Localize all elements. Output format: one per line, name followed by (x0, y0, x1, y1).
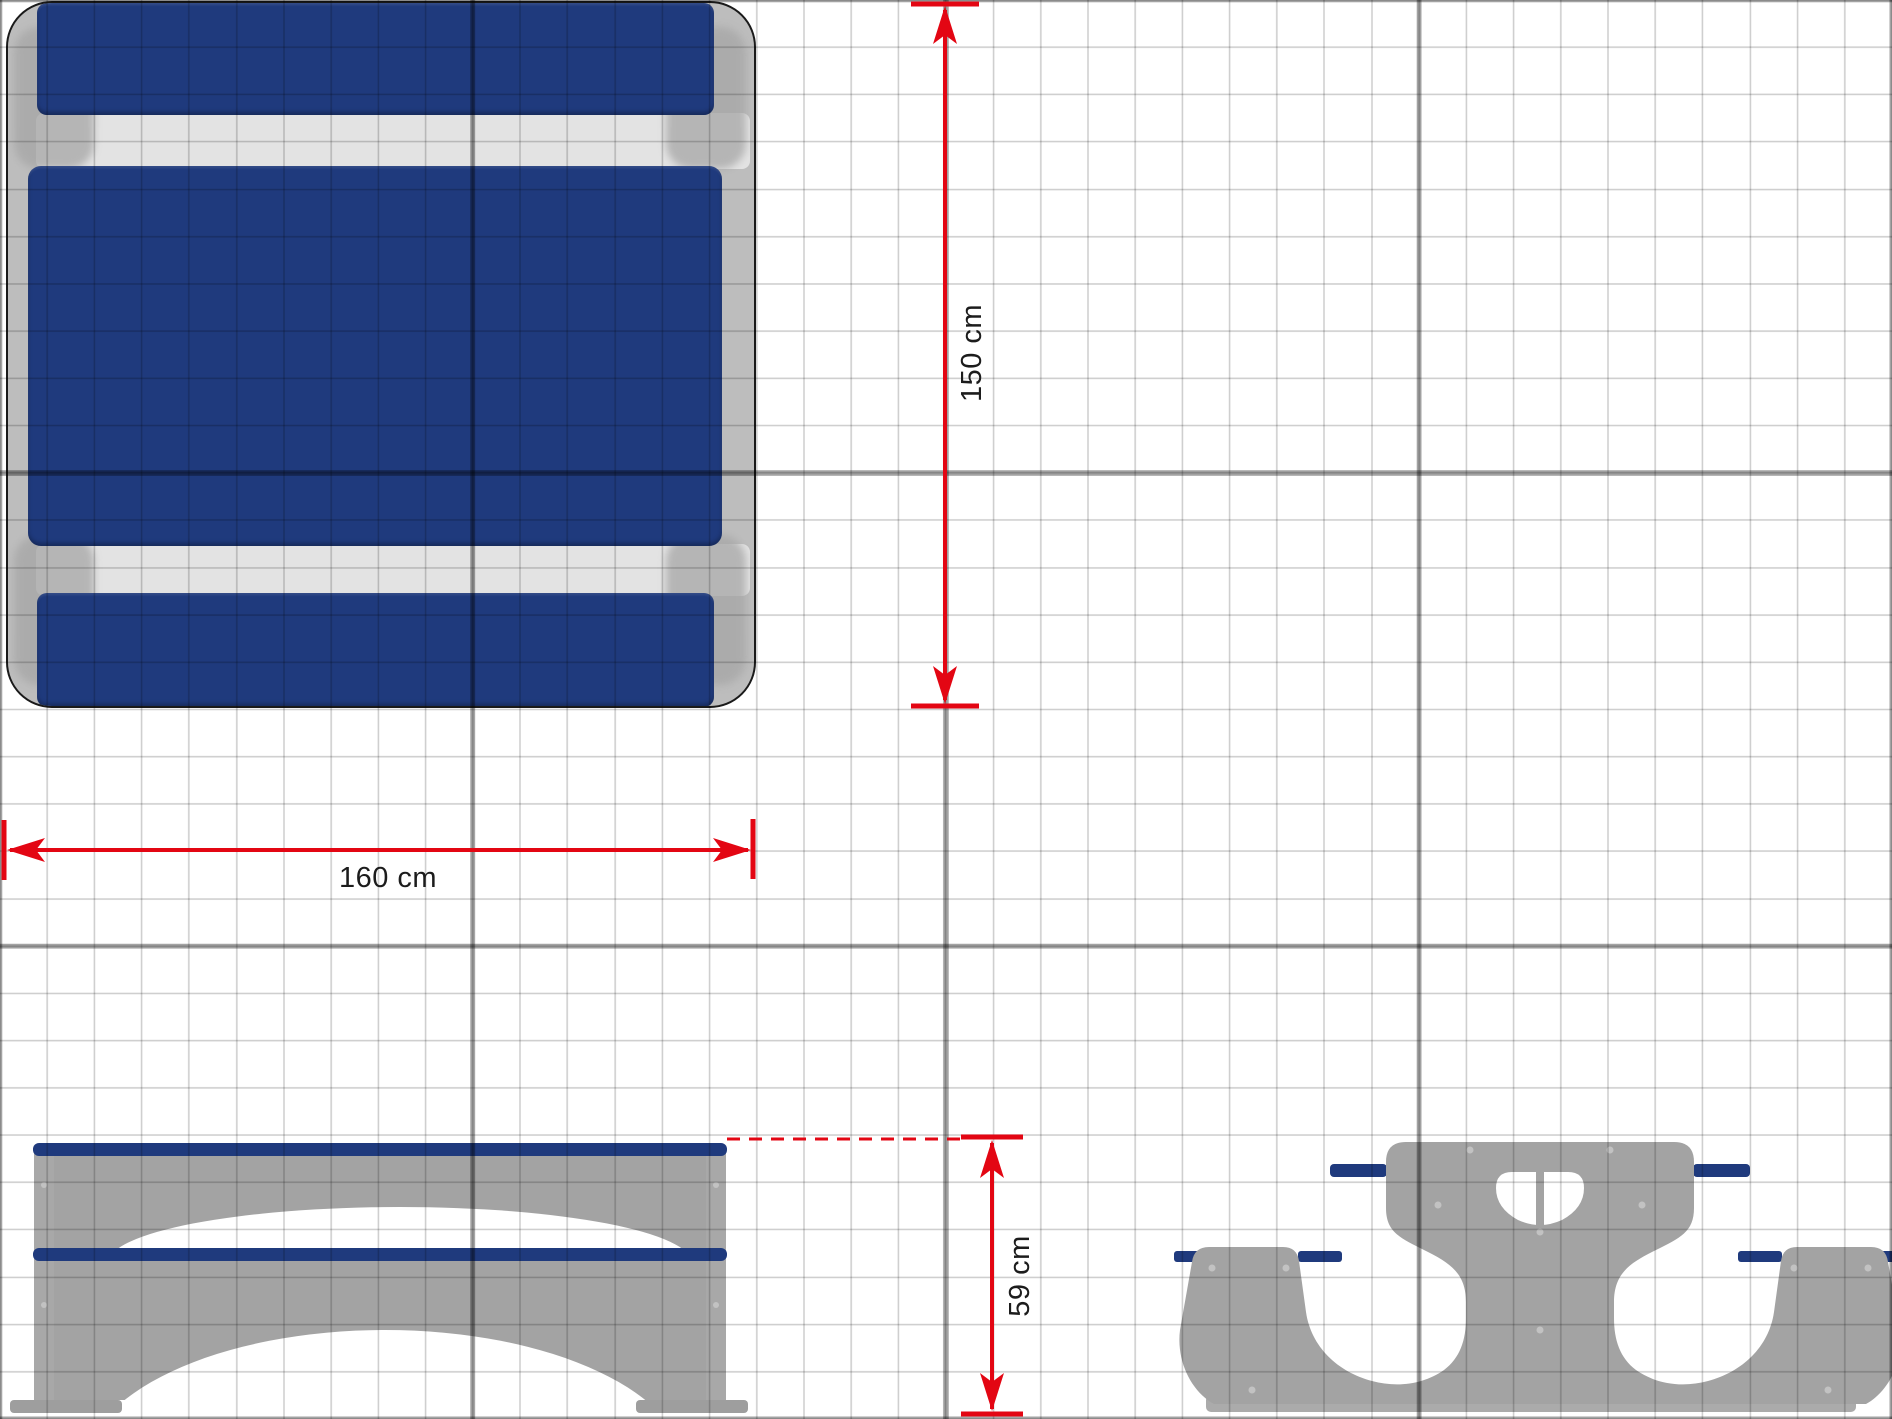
dim-label-table-height: 59 cm (1004, 1235, 1036, 1316)
end-bench-stub (1298, 1251, 1342, 1262)
screw-dot (1249, 1387, 1256, 1394)
arrow-left-icon (7, 838, 45, 862)
drawing-canvas: 150 cm 160 cm 59 cm (0, 0, 1892, 1419)
deck-gap-band (36, 113, 750, 169)
picnic-table-end-view (1160, 1130, 1892, 1419)
side-bench-edge (33, 1248, 727, 1261)
screw-dot (41, 1302, 47, 1308)
side-left-leg (34, 1150, 54, 1404)
end-bench-stub (1738, 1251, 1782, 1262)
arrow-up-icon (980, 1140, 1004, 1178)
picnic-table-top-view (6, 1, 756, 708)
dim-label-width: 160 cm (339, 862, 437, 894)
screw-dot (41, 1182, 47, 1188)
screw-dot (1825, 1387, 1832, 1394)
bench-board (37, 593, 714, 707)
end-tabletop-stub (1693, 1164, 1750, 1177)
screw-dot (1435, 1202, 1442, 1209)
arrow-down-icon (980, 1373, 1004, 1411)
arrow-right-icon (713, 838, 751, 862)
screw-dot (1537, 1327, 1544, 1334)
end-handle-divider (1536, 1171, 1544, 1226)
screw-dot (1209, 1265, 1216, 1272)
side-tabletop-edge (33, 1143, 727, 1156)
arrow-up-icon (933, 6, 957, 44)
dimension-width: 160 cm (4, 819, 753, 894)
arrow-down-icon (933, 666, 957, 704)
bench-board (37, 3, 714, 115)
dim-label-depth: 150 cm (956, 304, 988, 402)
screw-dot (1639, 1202, 1646, 1209)
end-tabletop-stub (1330, 1164, 1387, 1177)
screw-dot (713, 1302, 719, 1308)
side-right-leg (706, 1150, 726, 1404)
screw-dot (1791, 1265, 1798, 1272)
screw-dot (1467, 1147, 1474, 1154)
screw-dot (713, 1182, 719, 1188)
screw-dot (1283, 1265, 1290, 1272)
picnic-table-side-view (0, 1130, 800, 1419)
screw-dot (1537, 1229, 1544, 1236)
side-left-foot (10, 1400, 122, 1413)
side-right-foot (636, 1400, 748, 1413)
deck-gap-band (36, 544, 750, 596)
dimension-depth: 150 cm (911, 4, 988, 706)
tabletop-board (28, 166, 722, 546)
screw-dot (1865, 1265, 1872, 1272)
screw-dot (1607, 1147, 1614, 1154)
